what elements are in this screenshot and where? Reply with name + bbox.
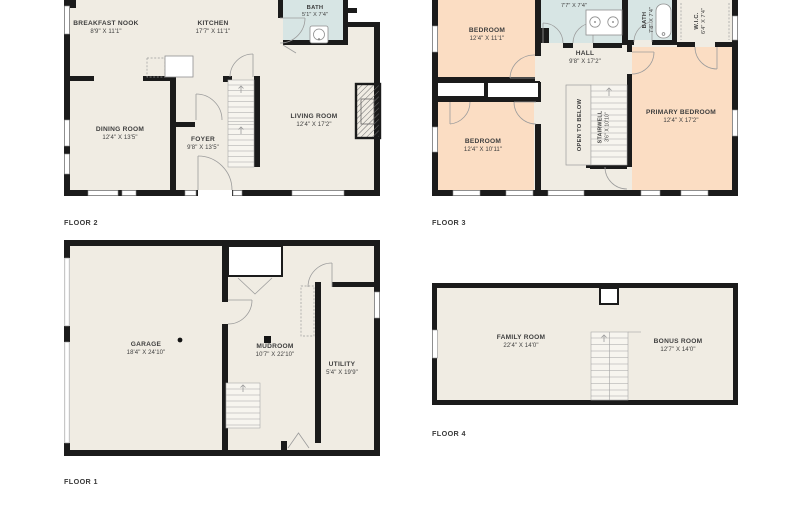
closet bbox=[487, 82, 539, 98]
floor3-label: FLOOR 3 bbox=[432, 218, 466, 227]
room-label-foyer: FOYER 9'8" X 13'5" bbox=[187, 136, 219, 152]
room-label-bath-f3: BATH 7'8" X 7'4" bbox=[642, 7, 656, 33]
room-label-family-room: FAMILY ROOM 22'4" X 14'0" bbox=[497, 334, 546, 350]
chimney bbox=[600, 288, 618, 304]
bathtub bbox=[656, 4, 671, 38]
floor2-front-door-opening bbox=[198, 190, 232, 196]
floor1-plan bbox=[64, 240, 380, 456]
room-label-dining-room: DINING ROOM 12'4" X 13'5" bbox=[96, 126, 144, 142]
room-label-open-to-below: OPEN TO BELOW bbox=[576, 99, 584, 151]
room-label-mudroom: MUDROOM 10'7" X 22'10" bbox=[256, 343, 295, 359]
room-label-bonus-room: BONUS ROOM 12'7" X 14'0" bbox=[654, 338, 703, 354]
room-label-kitchen: KITCHEN 17'7" X 11'1" bbox=[196, 20, 231, 36]
fireplace bbox=[356, 84, 380, 138]
floor2-stairs bbox=[228, 80, 254, 167]
mudroom-post bbox=[264, 336, 271, 343]
room-label-bedroom-top: BEDROOM 12'4" X 11'1" bbox=[469, 27, 505, 43]
floor2-bath-sink bbox=[310, 26, 328, 43]
floor1-label: FLOOR 1 bbox=[64, 477, 98, 486]
room-label-garage: GARAGE 18'4" X 24'10" bbox=[127, 341, 166, 357]
room-label-utility: UTILITY 5'4" X 19'9" bbox=[326, 361, 358, 377]
double-vanity-sinks bbox=[586, 10, 622, 35]
floorplan-drawing bbox=[0, 0, 800, 530]
garage-post-dot bbox=[178, 338, 183, 343]
floor4-label: FLOOR 4 bbox=[432, 429, 466, 438]
room-label-living-room: LIVING ROOM 12'4" X 17'2" bbox=[290, 113, 337, 129]
closet bbox=[437, 82, 485, 97]
room-label-bedroom-lower: BEDROOM 12'4" X 10'11" bbox=[464, 138, 502, 154]
room-label-bath-f2: BATH 5'1" X 7'4" bbox=[302, 5, 328, 19]
room-label-stairwell: STAIRWELL 3'6" X 10'10" bbox=[598, 111, 611, 144]
room-label-bath-top: 7'7" X 7'4" bbox=[561, 2, 587, 10]
family-room-window bbox=[433, 330, 438, 358]
room-label-hall: HALL 9'8" X 17'2" bbox=[569, 50, 601, 66]
floor2-label: FLOOR 2 bbox=[64, 218, 98, 227]
utility-window bbox=[375, 292, 380, 318]
room-label-breakfast-nook: BREAKFAST NOOK 8'9" X 11'1" bbox=[73, 20, 138, 36]
garage-door-wall bbox=[65, 258, 69, 443]
room-label-wic: W.I.C. 6'4" X 7'4" bbox=[694, 8, 708, 34]
floorplan-page: BREAKFAST NOOK 8'9" X 11'1" KITCHEN 17'7… bbox=[0, 0, 800, 530]
floor1-stairs bbox=[226, 383, 260, 428]
room-label-primary-bedroom: PRIMARY BEDROOM 12'4" X 17'2" bbox=[646, 109, 716, 125]
